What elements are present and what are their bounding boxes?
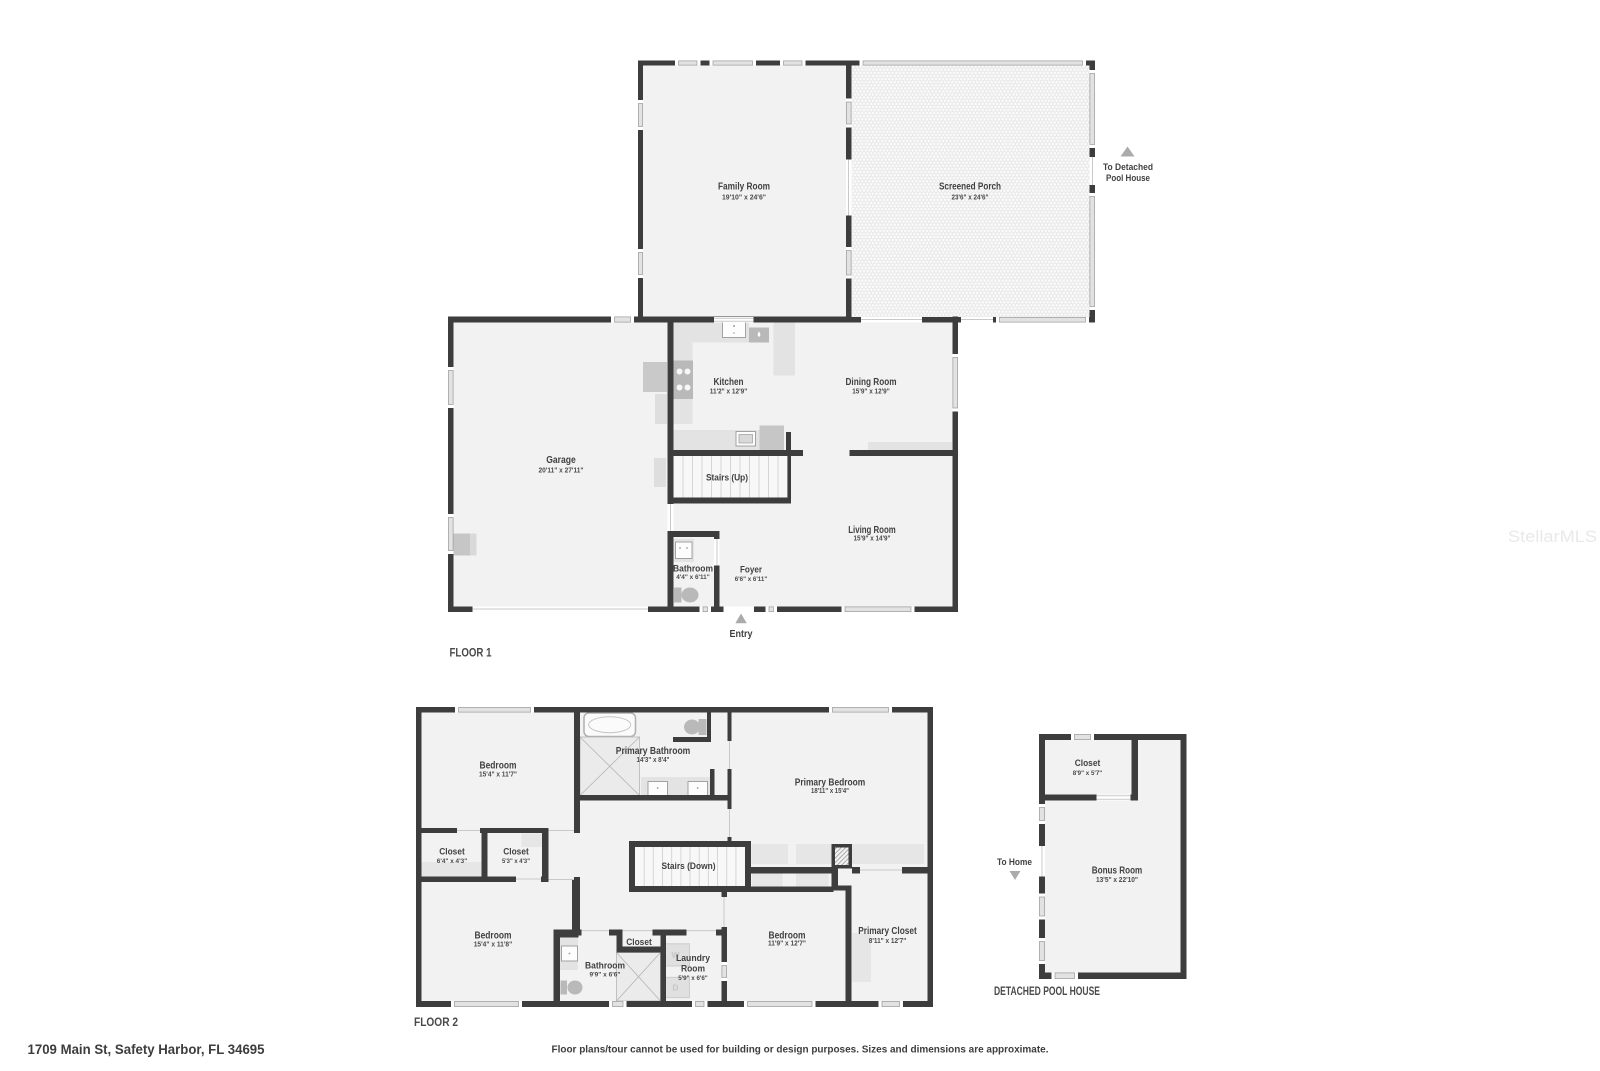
svg-text:18'11" x 15'4": 18'11" x 15'4" (811, 786, 849, 795)
svg-text:6'4" x 4'3": 6'4" x 4'3" (437, 858, 468, 865)
svg-text:FLOOR 2: FLOOR 2 (414, 1015, 458, 1029)
svg-text:19'10" x 24'6": 19'10" x 24'6" (722, 192, 766, 201)
svg-text:Screened Porch: Screened Porch (939, 182, 1001, 193)
svg-text:6'6" x 6'11": 6'6" x 6'11" (735, 576, 768, 583)
svg-text:Bathroom: Bathroom (673, 563, 713, 574)
svg-text:13'5" x 22'10": 13'5" x 22'10" (1096, 875, 1138, 884)
svg-text:Closet: Closet (626, 937, 652, 948)
svg-text:Family Room: Family Room (718, 182, 770, 193)
svg-text:Stairs (Up): Stairs (Up) (706, 472, 748, 483)
svg-text:StellarMLS: StellarMLS (1508, 528, 1597, 546)
svg-text:15'4" x 11'8": 15'4" x 11'8" (474, 940, 513, 949)
svg-text:8'11" x 12'7": 8'11" x 12'7" (869, 936, 907, 945)
svg-text:DETACHED POOL HOUSE: DETACHED POOL HOUSE (994, 984, 1100, 998)
svg-text:4'4" x 6'11": 4'4" x 6'11" (676, 574, 710, 581)
svg-text:Room: Room (681, 963, 705, 974)
svg-text:11'2" x 12'9": 11'2" x 12'9" (710, 387, 748, 396)
svg-text:15'4" x 11'7": 15'4" x 11'7" (479, 770, 517, 779)
svg-text:Garage: Garage (546, 455, 576, 466)
svg-text:1709 Main St, Safety Harbor, F: 1709 Main St, Safety Harbor, FL 34695 (28, 1041, 265, 1057)
svg-text:Closet: Closet (503, 846, 529, 857)
svg-text:Closet: Closet (1075, 758, 1101, 769)
svg-text:FLOOR 1: FLOOR 1 (450, 646, 492, 660)
svg-text:D: D (672, 983, 678, 993)
svg-text:20'11" x 27'11": 20'11" x 27'11" (539, 466, 584, 475)
svg-text:5'3" x 4'3": 5'3" x 4'3" (502, 858, 530, 865)
svg-text:To Detached: To Detached (1103, 162, 1153, 173)
svg-text:Closet: Closet (439, 846, 465, 857)
svg-text:Stairs (Down): Stairs (Down) (662, 861, 716, 872)
svg-text:5'9" x 6'6": 5'9" x 6'6" (678, 975, 708, 982)
svg-text:Laundry: Laundry (676, 953, 711, 964)
svg-text:14'3" x 8'4": 14'3" x 8'4" (637, 755, 670, 764)
svg-text:Entry: Entry (730, 629, 753, 640)
svg-text:23'6" x 24'6": 23'6" x 24'6" (952, 192, 989, 201)
svg-text:15'9" x 12'9": 15'9" x 12'9" (852, 387, 890, 396)
svg-text:Floor plans/tour cannot be use: Floor plans/tour cannot be used for buil… (552, 1044, 1049, 1056)
svg-text:15'9" x 14'9": 15'9" x 14'9" (854, 534, 891, 543)
svg-text:Pool House: Pool House (1106, 173, 1150, 184)
svg-text:Foyer: Foyer (740, 564, 762, 575)
svg-text:11'9" x 12'7": 11'9" x 12'7" (768, 939, 806, 948)
svg-text:Bathroom: Bathroom (585, 960, 625, 971)
svg-text:To Home: To Home (997, 857, 1032, 868)
svg-text:8'9" x 5'7": 8'9" x 5'7" (1073, 770, 1103, 777)
svg-text:9'9" x 6'6": 9'9" x 6'6" (590, 971, 621, 978)
